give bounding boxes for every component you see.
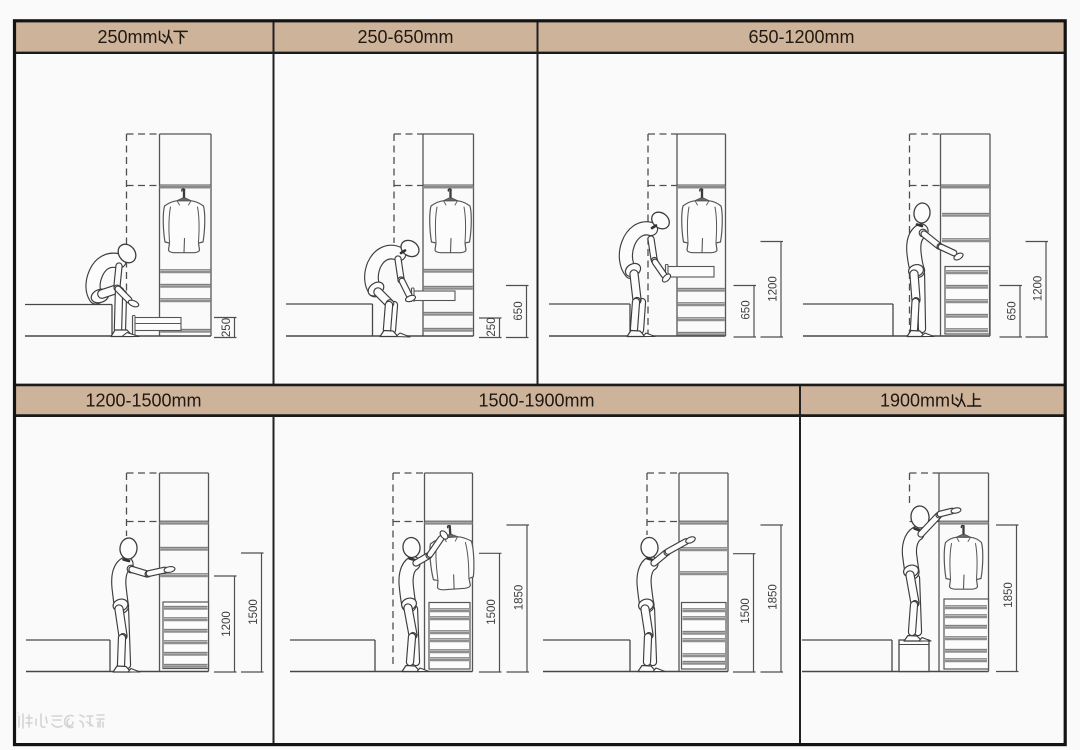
svg-text:250mm: 250mm: [97, 27, 157, 47]
svg-text:1850: 1850: [1003, 582, 1015, 608]
svg-text:1900mm: 1900mm: [880, 391, 950, 411]
svg-text:650: 650: [513, 301, 525, 320]
svg-text:1850: 1850: [767, 584, 779, 610]
svg-text:250: 250: [221, 318, 233, 337]
svg-text:1500: 1500: [248, 599, 260, 625]
svg-text:250: 250: [486, 317, 498, 336]
svg-text:1200: 1200: [221, 611, 233, 637]
svg-text:650: 650: [1006, 301, 1018, 320]
svg-text:1200: 1200: [1032, 276, 1044, 302]
svg-text:1850: 1850: [513, 585, 525, 611]
svg-text:1500: 1500: [486, 599, 498, 625]
svg-text:650-1200mm: 650-1200mm: [748, 27, 854, 47]
svg-text:1200-1500mm: 1200-1500mm: [85, 391, 201, 411]
svg-text:1500: 1500: [740, 598, 752, 624]
svg-text:650: 650: [740, 300, 752, 319]
svg-text:1200: 1200: [767, 276, 779, 302]
svg-text:1500-1900mm: 1500-1900mm: [478, 391, 594, 411]
svg-text:250-650mm: 250-650mm: [357, 27, 453, 47]
